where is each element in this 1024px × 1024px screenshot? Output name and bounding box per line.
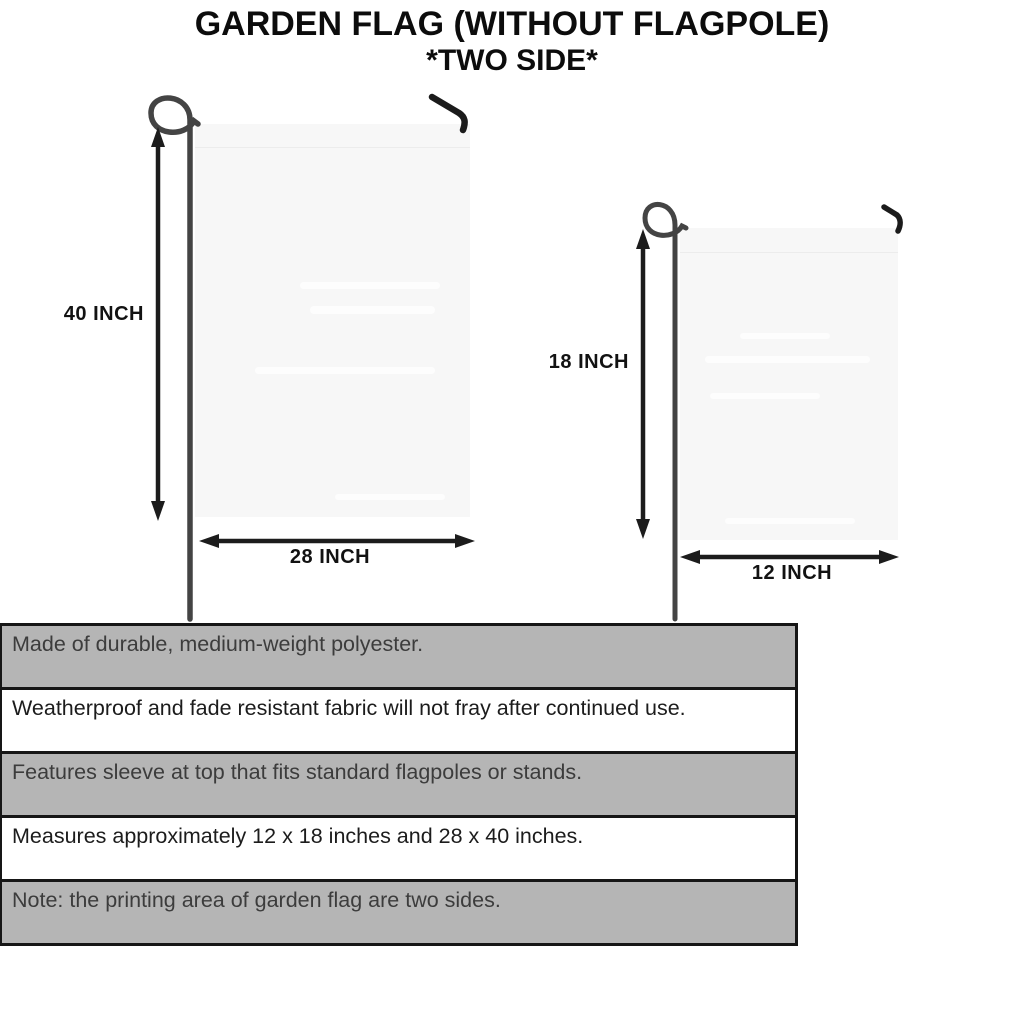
feature-text: Measures approximately 12 x 18 inches an… — [1, 817, 797, 881]
features-table: Made of durable, medium-weight polyester… — [0, 623, 798, 946]
small-height-arrow — [636, 229, 650, 539]
page-title: GARDEN FLAG (WITHOUT FLAGPOLE) — [0, 4, 1024, 44]
large-flag-height-label: 40 INCH — [40, 303, 144, 326]
feature-text: Note: the printing area of garden flag a… — [1, 881, 797, 945]
product-infographic: GARDEN FLAG (WITHOUT FLAGPOLE) *TWO SIDE… — [0, 0, 1024, 1024]
flag-fold — [310, 306, 435, 314]
small-flag-height-label: 18 INCH — [525, 351, 629, 374]
large-flagpole-icon — [151, 98, 198, 619]
flag-fold — [710, 393, 820, 399]
table-row: Measures approximately 12 x 18 inches an… — [1, 817, 797, 881]
title-block: GARDEN FLAG (WITHOUT FLAGPOLE) *TWO SIDE… — [0, 4, 1024, 78]
large-flag-sleeve-line — [195, 147, 470, 148]
flag-fold — [335, 494, 445, 500]
small-flag-fabric — [680, 228, 898, 540]
table-row: Features sleeve at top that fits standar… — [1, 753, 797, 817]
small-flag-width-label: 12 INCH — [692, 562, 892, 585]
table-row: Note: the printing area of garden flag a… — [1, 881, 797, 945]
flag-fold — [740, 333, 830, 339]
large-height-arrow — [151, 127, 165, 521]
flag-fold — [705, 356, 870, 363]
flag-fold — [725, 518, 855, 524]
large-flag-fabric — [195, 124, 470, 517]
feature-text: Made of durable, medium-weight polyester… — [1, 625, 797, 689]
page-subtitle: *TWO SIDE* — [0, 44, 1024, 78]
feature-text: Features sleeve at top that fits standar… — [1, 753, 797, 817]
table-row: Made of durable, medium-weight polyester… — [1, 625, 797, 689]
feature-text: Weatherproof and fade resistant fabric w… — [1, 689, 797, 753]
flag-fold — [255, 367, 435, 374]
small-flag-sleeve-line — [680, 252, 898, 253]
table-row: Weatherproof and fade resistant fabric w… — [1, 689, 797, 753]
large-flag-width-label: 28 INCH — [230, 546, 430, 569]
flag-fold — [300, 282, 440, 289]
